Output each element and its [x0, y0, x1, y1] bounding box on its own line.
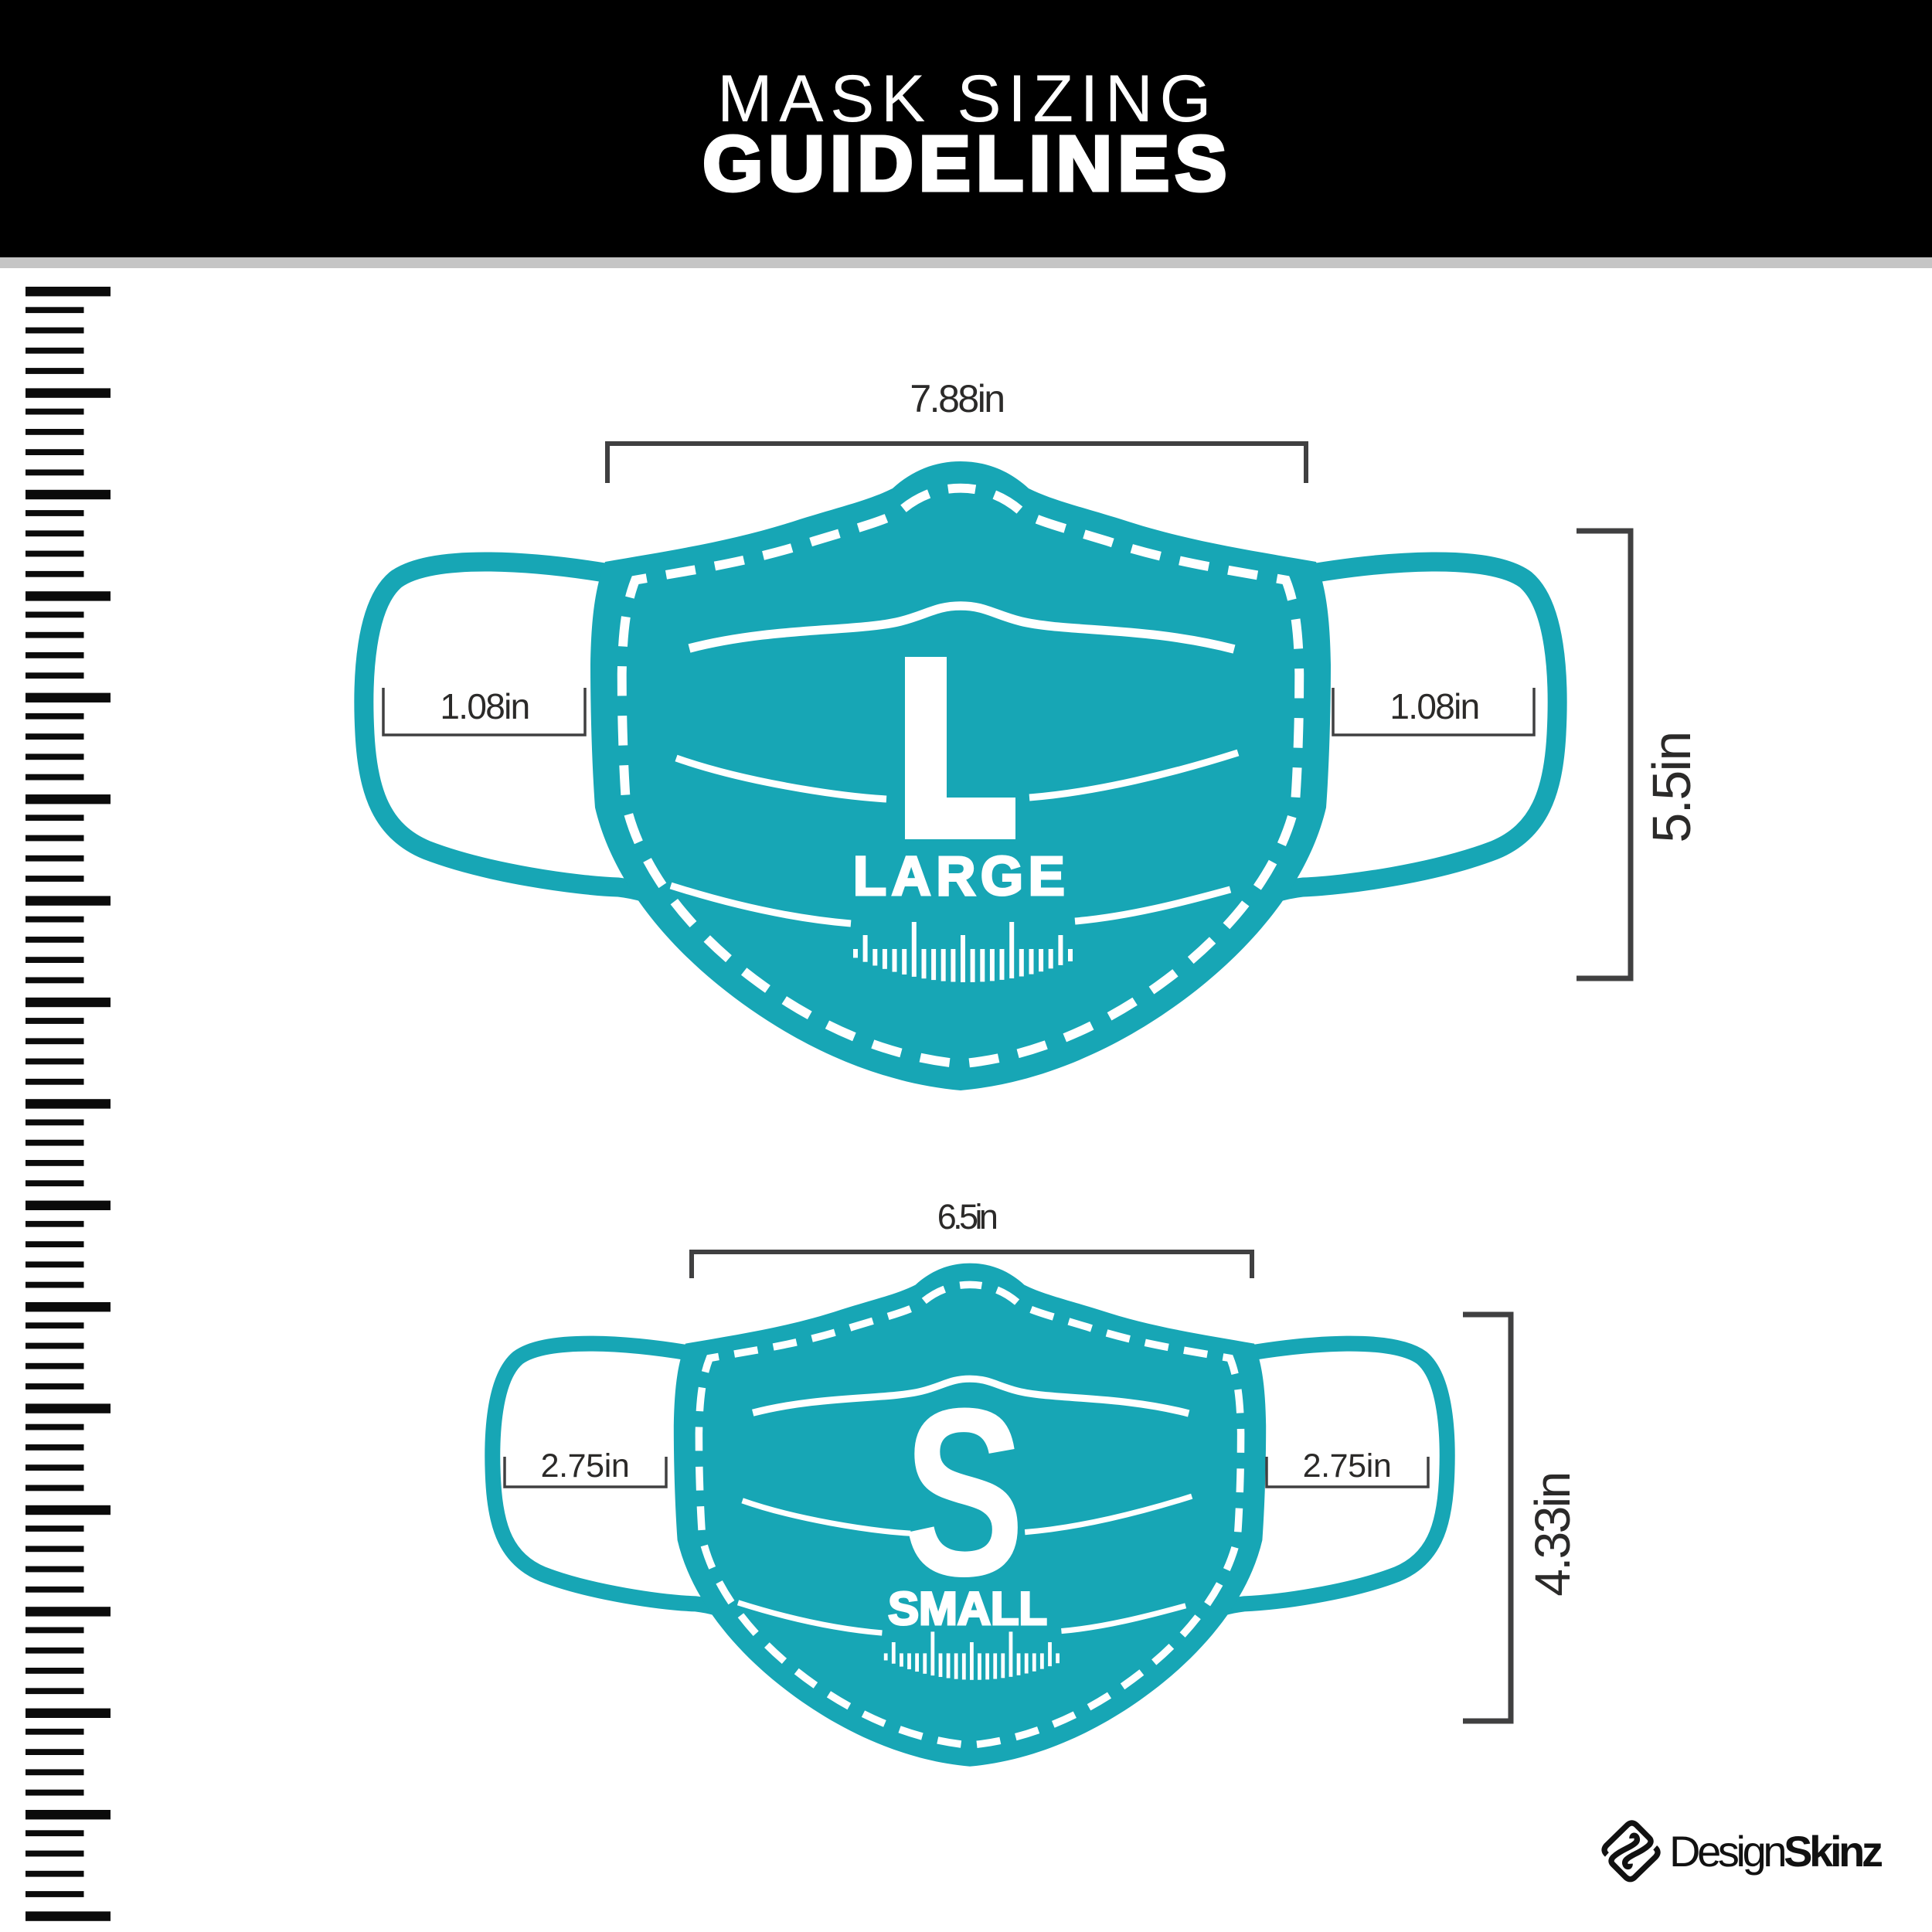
svg-text:5.5in: 5.5in — [1641, 732, 1702, 842]
svg-text:2.75in: 2.75in — [1303, 1447, 1392, 1485]
svg-text:SMALL: SMALL — [888, 1583, 1047, 1634]
svg-text:GUIDELINES: GUIDELINES — [702, 121, 1232, 207]
svg-text:4.33in: 4.33in — [1525, 1473, 1580, 1596]
svg-text:DesignSkinz: DesignSkinz — [1669, 1827, 1882, 1876]
svg-text:2.75in: 2.75in — [541, 1447, 630, 1485]
svg-text:LARGE: LARGE — [853, 846, 1070, 907]
svg-text:1.08in: 1.08in — [1389, 686, 1478, 726]
svg-text:1.08in: 1.08in — [440, 686, 529, 726]
svg-text:7.88in: 7.88in — [910, 377, 1003, 420]
svg-text:6.5in: 6.5in — [937, 1197, 997, 1236]
